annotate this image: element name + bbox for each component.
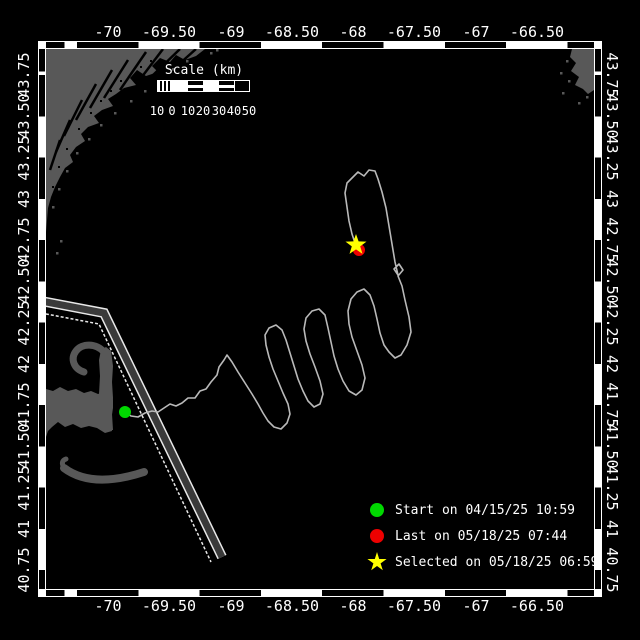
islet-speckle: [562, 92, 565, 95]
islet-speckle: [88, 138, 91, 141]
legend-last-label: Last on 05/18/25 07:44: [395, 529, 567, 544]
land-texture-speckle: [150, 60, 152, 62]
frame-corner-nw: [38, 41, 46, 49]
axis-tick-label: -68.50: [265, 597, 319, 615]
legend-row-start: Start on 04/15/25 10:59: [367, 497, 599, 523]
scale-bar-number: 30: [212, 104, 226, 118]
axis-tick-label: 42.25: [603, 300, 621, 345]
axis-tick-label: 43.75: [15, 52, 33, 97]
axis-tick-label: 41: [603, 520, 621, 538]
axis-tick-label: 43: [15, 190, 33, 208]
scale-bar-segment: [188, 81, 203, 91]
islet-speckle: [114, 112, 117, 115]
shipping-lane-boundary: [46, 313, 211, 562]
islet-speckle: [130, 100, 133, 103]
axis-tick-label: 43.50: [603, 93, 621, 138]
cape-cod-forearm: [99, 347, 113, 430]
axis-tick-label: 43.50: [15, 93, 33, 138]
track-map-window: -70-69.50-69-68.50-68-67.50-67-66.50 -70…: [0, 0, 640, 640]
shipping-lane-edges: [46, 301, 222, 557]
axis-tick-label: -69: [217, 597, 244, 615]
axis-tick-label: 40.75: [15, 547, 33, 592]
frame-top: [38, 41, 602, 49]
axis-tick-label: 43.25: [15, 135, 33, 180]
axis-tick-label: 42.50: [15, 258, 33, 303]
axis-tick-label: 42.50: [603, 258, 621, 303]
scale-bar-number: 40: [227, 104, 241, 118]
scale-bar-segment: [158, 81, 173, 91]
islet-speckle: [210, 52, 213, 55]
axis-tick-label: 41: [15, 520, 33, 538]
axis-tick-label: 42.25: [15, 300, 33, 345]
legend-row-last: Last on 05/18/25 07:44: [367, 523, 599, 549]
scale-bar-title: Scale (km): [165, 63, 243, 78]
axis-tick-label: -69.50: [142, 597, 196, 615]
selected-star-icon: [367, 552, 387, 572]
axis-tick-label: 43.25: [603, 135, 621, 180]
axis-tick-label: -69: [217, 23, 244, 41]
axis-tick-label: 40.75: [603, 547, 621, 592]
axis-tick-label: -66.50: [510, 23, 564, 41]
scale-bar-number: 0: [168, 104, 175, 118]
axis-tick-label: -67.50: [387, 23, 441, 41]
scale-bar-segment: [235, 81, 249, 91]
legend-start-label: Start on 04/15/25 10:59: [395, 503, 575, 518]
land-texture-speckle: [66, 148, 68, 150]
start-dot-icon: [367, 503, 387, 517]
islet-speckle: [52, 206, 55, 209]
axis-tick-label: 41.25: [15, 465, 33, 510]
islet-speckle: [144, 90, 147, 93]
axis-tick-label: 41.50: [15, 423, 33, 468]
scale-bar-number: 10: [150, 104, 164, 118]
islet-speckle: [56, 252, 59, 255]
scale-bar-number: 10: [181, 104, 195, 118]
northeast-coastline: [570, 49, 594, 94]
scale-bar-number: 50: [242, 104, 256, 118]
axis-tick-label: -68: [339, 597, 366, 615]
frame-corner-ne: [594, 41, 602, 49]
start-position-marker[interactable]: [119, 406, 131, 418]
scale-bar-segment: [173, 81, 188, 91]
scale-bar-segment: [219, 81, 234, 91]
legend: Start on 04/15/25 10:59 Last on 05/18/25…: [367, 497, 599, 575]
axis-tick-label: 41.50: [603, 423, 621, 468]
axis-tick-label: -70: [94, 597, 121, 615]
last-dot-icon: [367, 529, 387, 543]
frame-corner-se: [594, 589, 602, 597]
islet-speckle: [568, 80, 571, 83]
axis-tick-label: 42: [15, 355, 33, 373]
islet-speckle: [578, 102, 581, 105]
islet-speckle: [566, 60, 569, 63]
shipping-lane-band: [46, 301, 222, 557]
islet-speckle: [76, 152, 79, 155]
axis-tick-label: -69.50: [142, 23, 196, 41]
axis-tick-label: 41.25: [603, 465, 621, 510]
legend-selected-label: Selected on 05/18/25 06:59: [395, 555, 599, 570]
axis-tick-label: 42: [603, 355, 621, 373]
islet-speckle: [66, 170, 69, 173]
nantucket-tip: [62, 459, 66, 468]
islet-speckle: [60, 240, 63, 243]
frame-left: [38, 49, 46, 589]
islet-speckle: [58, 188, 61, 191]
axis-tick-label: -67: [462, 597, 489, 615]
land-texture-speckle: [52, 186, 54, 188]
land-texture-speckle: [110, 90, 112, 92]
axis-tick-label: -68.50: [265, 23, 319, 41]
islet-speckle: [216, 49, 219, 52]
nantucket-island: [64, 468, 144, 480]
axis-tick-label: 42.75: [603, 217, 621, 262]
land-texture-speckle: [58, 166, 60, 168]
axis-tick-label: 41.75: [15, 382, 33, 427]
land-texture-speckle: [100, 100, 102, 102]
axis-tick-label: -66.50: [510, 597, 564, 615]
islet-speckle: [586, 96, 589, 99]
axis-tick-label: -67: [462, 23, 489, 41]
axis-tick-label: 42.75: [15, 217, 33, 262]
axis-tick-label: 41.75: [603, 382, 621, 427]
scale-bar-number: 20: [196, 104, 210, 118]
frame-corner-sw: [38, 589, 46, 597]
axis-tick-label: -70: [94, 23, 121, 41]
islet-speckle: [100, 124, 103, 127]
axis-tick-label: 43: [603, 190, 621, 208]
frame-bottom: [38, 589, 602, 597]
land-texture-speckle: [78, 128, 80, 130]
land-texture-speckle: [90, 112, 92, 114]
land-texture-speckle: [140, 66, 142, 68]
glider-track-path[interactable]: [125, 170, 411, 429]
legend-row-selected: Selected on 05/18/25 06:59: [367, 549, 599, 575]
scale-bar-segment: [204, 81, 219, 91]
islet-speckle: [560, 72, 563, 75]
axis-tick-label: 43.75: [603, 52, 621, 97]
axis-tick-label: -68: [339, 23, 366, 41]
scale-bar-graphic: [157, 80, 250, 92]
axis-tick-label: -67.50: [387, 597, 441, 615]
land-texture-speckle: [120, 80, 122, 82]
